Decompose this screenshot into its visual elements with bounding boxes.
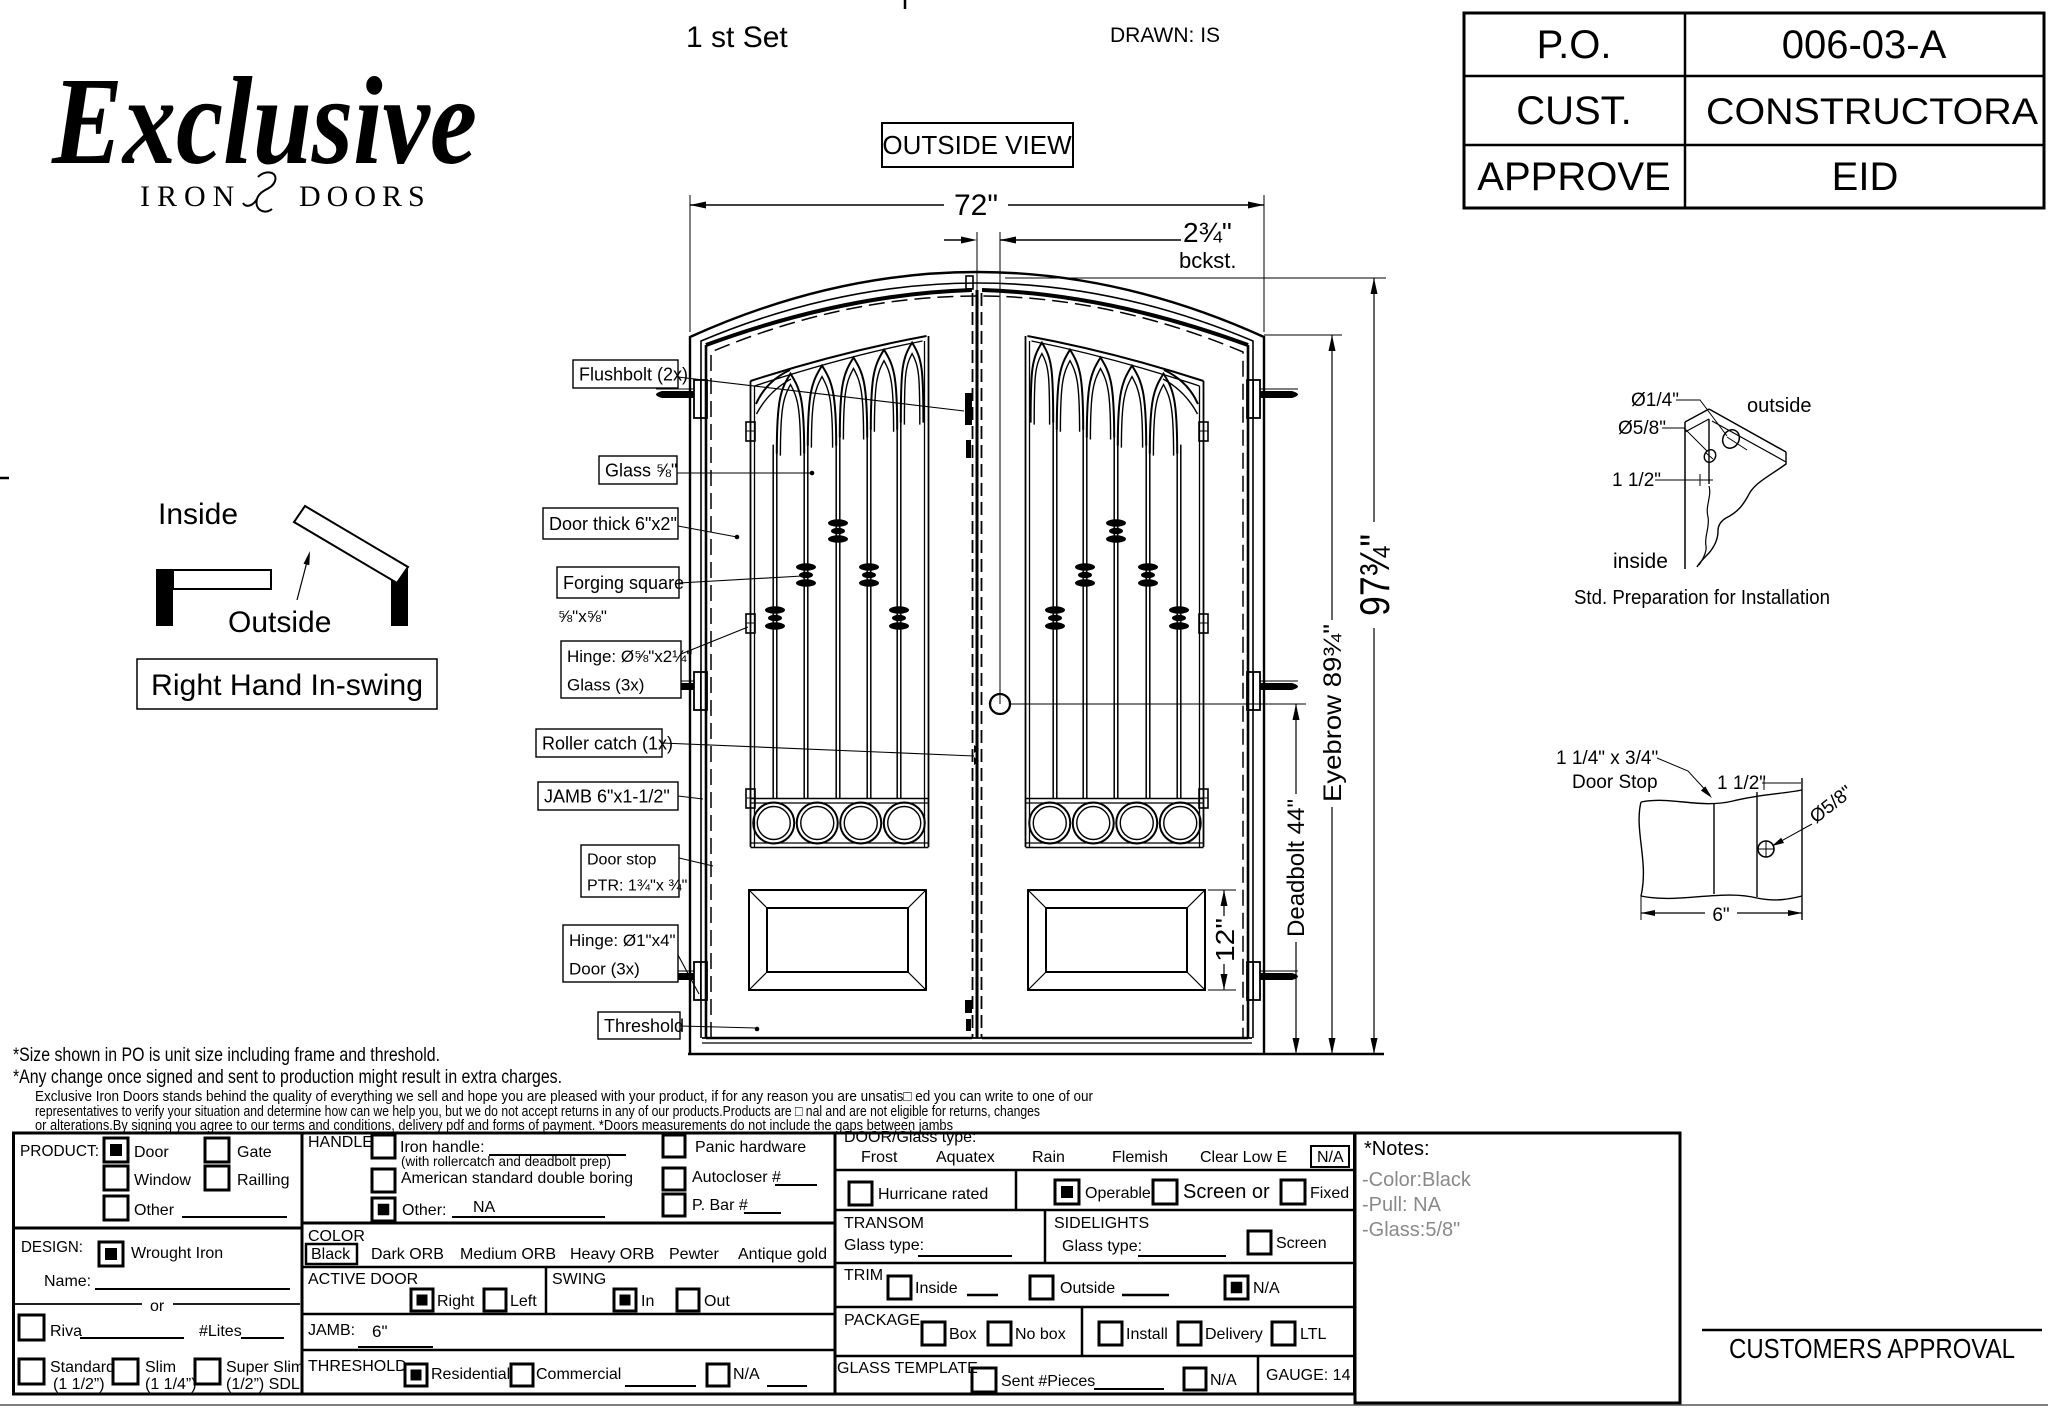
svg-text:LTL: LTL: [1300, 1326, 1326, 1343]
svg-text:Door: Door: [134, 1144, 169, 1161]
svg-text:Clear Low E: Clear Low E: [1200, 1149, 1287, 1166]
svg-text:Antique gold: Antique gold: [738, 1246, 827, 1263]
svg-text:GAUGE: 14: GAUGE: 14: [1266, 1367, 1351, 1384]
svg-text:Slim: Slim: [145, 1359, 176, 1376]
svg-text:Other: Other: [134, 1202, 175, 1219]
svg-text:PTR: 1¾"x ¾": PTR: 1¾"x ¾": [587, 878, 687, 895]
svg-text:N/A: N/A: [733, 1366, 760, 1383]
svg-text:Super Slim: Super Slim: [226, 1359, 304, 1376]
svg-text:Box: Box: [949, 1326, 977, 1343]
svg-text:Inside: Inside: [158, 498, 238, 531]
svg-text:Gate: Gate: [237, 1144, 272, 1161]
svg-text:or alterations.By signing you: or alterations.By signing you agree to o…: [35, 1117, 953, 1134]
svg-text:CONSTRUCTORA: CONSTRUCTORA: [1706, 91, 2038, 132]
svg-text:72": 72": [954, 189, 998, 222]
svg-text:Glass type:: Glass type:: [1062, 1238, 1142, 1255]
svg-text:CUSTOMERS APPROVAL: CUSTOMERS APPROVAL: [1729, 1333, 2015, 1364]
svg-text:Roller catch (1x): Roller catch (1x): [542, 734, 673, 754]
svg-text:TRANSOM: TRANSOM: [844, 1215, 924, 1232]
svg-text:*Any change once signed and se: *Any change once signed and sent to prod…: [13, 1067, 562, 1088]
svg-text:Left: Left: [510, 1293, 537, 1310]
svg-text:(1 1/4”): (1 1/4”): [145, 1376, 197, 1393]
svg-text:Forging square: Forging square: [563, 573, 684, 593]
svg-text:Door Stop: Door Stop: [1572, 772, 1658, 793]
svg-text:Outside: Outside: [228, 606, 331, 639]
svg-text:THRESHOLD: THRESHOLD: [308, 1358, 407, 1375]
svg-text:Flushbolt (2x): Flushbolt (2x): [579, 365, 688, 385]
svg-text:Residential: Residential: [431, 1366, 510, 1383]
svg-text:⅝"x⅝": ⅝"x⅝": [558, 607, 607, 626]
svg-text:Fixed: Fixed: [1310, 1185, 1349, 1202]
svg-text:Dark ORB: Dark ORB: [371, 1246, 444, 1263]
svg-text:Glass type:: Glass type:: [844, 1237, 924, 1254]
svg-text:1 1/2": 1 1/2": [1612, 470, 1661, 491]
svg-text:PRODUCT:: PRODUCT:: [20, 1143, 99, 1160]
svg-text:Window: Window: [134, 1172, 191, 1189]
svg-text:Black: Black: [311, 1246, 351, 1263]
svg-text:12": 12": [1210, 918, 1240, 962]
svg-text:(1 1/2”): (1 1/2”): [53, 1376, 105, 1393]
svg-text:No box: No box: [1015, 1326, 1066, 1343]
svg-text:Out: Out: [704, 1293, 730, 1310]
svg-text:1 1/2": 1 1/2": [1717, 773, 1766, 794]
svg-text:Door (3x): Door (3x): [569, 959, 640, 978]
svg-text:Heavy ORB: Heavy ORB: [570, 1246, 654, 1263]
svg-text:In: In: [641, 1293, 654, 1310]
svg-text:CUST.: CUST.: [1516, 89, 1632, 133]
svg-text:2¾": 2¾": [1183, 217, 1232, 248]
svg-text:Hinge: Ø⅝"x2¼": Hinge: Ø⅝"x2¼": [567, 647, 692, 666]
svg-text:Frost: Frost: [861, 1149, 898, 1166]
svg-text:1 1/4" x 3/4": 1 1/4" x 3/4": [1556, 748, 1658, 769]
svg-text:IRON: IRON: [140, 180, 241, 213]
svg-text:Name:: Name:: [44, 1273, 91, 1290]
svg-text:#Lites: #Lites: [199, 1323, 242, 1340]
svg-text:Right Hand In-swing: Right Hand In-swing: [151, 669, 423, 702]
svg-text:or: or: [150, 1298, 165, 1315]
svg-text:Flemish: Flemish: [1112, 1149, 1168, 1166]
svg-text:Operable: Operable: [1085, 1185, 1151, 1202]
svg-text:Hurricane rated: Hurricane rated: [878, 1186, 988, 1203]
svg-text:bckst.: bckst.: [1179, 248, 1236, 273]
svg-text:-Pull: NA: -Pull: NA: [1362, 1194, 1442, 1216]
svg-text:*Notes:: *Notes:: [1364, 1138, 1430, 1160]
svg-text:-Color:Black: -Color:Black: [1362, 1169, 1472, 1191]
svg-text:Autocloser #: Autocloser #: [692, 1169, 781, 1186]
svg-text:APPROVE: APPROVE: [1477, 155, 1670, 199]
svg-text:Ø1/4": Ø1/4": [1631, 390, 1679, 411]
svg-text:Delivery: Delivery: [1205, 1326, 1263, 1343]
svg-text:Deadbolt 44": Deadbolt 44": [1283, 799, 1310, 937]
svg-text:Door thick 6"x2": Door thick 6"x2": [549, 514, 677, 534]
svg-text:6": 6": [1712, 905, 1729, 926]
svg-text:JAMB:: JAMB:: [308, 1322, 355, 1339]
svg-text:DOOR/Glass type:: DOOR/Glass type:: [844, 1129, 976, 1146]
svg-text:Hinge: Ø1"x4": Hinge: Ø1"x4": [569, 931, 676, 950]
svg-text:Install: Install: [1126, 1326, 1168, 1343]
svg-text:Ø5/8": Ø5/8": [1618, 418, 1666, 439]
svg-text:DRAWN: IS: DRAWN: IS: [1110, 24, 1220, 47]
svg-text:EID: EID: [1832, 155, 1899, 199]
svg-text:P.O.: P.O.: [1537, 23, 1612, 67]
svg-text:PACKAGE: PACKAGE: [844, 1312, 920, 1329]
svg-text:006-03-A: 006-03-A: [1782, 23, 1947, 67]
svg-text:Screen or: Screen or: [1183, 1181, 1270, 1203]
svg-text:Commercial: Commercial: [536, 1366, 621, 1383]
svg-text:6": 6": [372, 1322, 388, 1341]
svg-text:DOORS: DOORS: [299, 180, 431, 213]
svg-text:ACTIVE DOOR: ACTIVE DOOR: [308, 1271, 418, 1288]
svg-text:SIDELIGHTS: SIDELIGHTS: [1054, 1215, 1149, 1232]
svg-text:Eyebrow 89¾": Eyebrow 89¾": [1319, 624, 1347, 802]
svg-text:Aquatex: Aquatex: [936, 1149, 995, 1166]
svg-text:(with rollercatch and deadbolt: (with rollercatch and deadbolt prep): [401, 1153, 611, 1169]
svg-text:American standard double borin: American standard double boring: [401, 1170, 633, 1187]
svg-text:Door stop: Door stop: [587, 852, 656, 869]
svg-text:Inside: Inside: [915, 1280, 958, 1297]
svg-text:N/A: N/A: [1253, 1280, 1280, 1297]
svg-text:HANDLE: HANDLE: [308, 1134, 373, 1151]
svg-text:Threshold: Threshold: [604, 1016, 684, 1036]
svg-text:Other:: Other:: [402, 1202, 446, 1219]
svg-text:Riva: Riva: [50, 1323, 82, 1340]
svg-text:Panic hardware: Panic hardware: [695, 1139, 806, 1156]
svg-text:outside: outside: [1747, 395, 1812, 417]
svg-text:P. Bar #: P. Bar #: [692, 1197, 748, 1214]
svg-text:NA: NA: [473, 1199, 496, 1216]
svg-text:-Glass:5/8": -Glass:5/8": [1362, 1219, 1460, 1241]
svg-text:SWING: SWING: [552, 1271, 606, 1288]
svg-text:Standard: Standard: [50, 1359, 115, 1376]
svg-text:N/A: N/A: [1317, 1149, 1344, 1166]
svg-text:Medium ORB: Medium ORB: [460, 1246, 556, 1263]
svg-text:DESIGN:: DESIGN:: [21, 1239, 83, 1256]
svg-text:Screen: Screen: [1276, 1235, 1327, 1252]
svg-text:Rain: Rain: [1032, 1149, 1065, 1166]
svg-text:Glass (3x): Glass (3x): [567, 675, 644, 694]
svg-text:Wrought Iron: Wrought Iron: [131, 1245, 223, 1262]
svg-text:Right: Right: [437, 1293, 475, 1310]
svg-text:Std. Preparation for Installat: Std. Preparation for Installation: [1574, 587, 1830, 609]
svg-text:Exclusive: Exclusive: [51, 53, 477, 191]
svg-text:Outside: Outside: [1060, 1280, 1115, 1297]
svg-text:JAMB 6"x1-1/2": JAMB 6"x1-1/2": [544, 787, 670, 807]
svg-text:*Size shown in PO is unit size: *Size shown in PO is unit size including…: [13, 1045, 440, 1066]
svg-text:COLOR: COLOR: [308, 1228, 365, 1245]
svg-text:TRIM: TRIM: [844, 1267, 883, 1284]
svg-text:1 st Set: 1 st Set: [686, 21, 788, 54]
svg-text:97¾": 97¾": [1351, 534, 1398, 616]
svg-text:N/A: N/A: [1210, 1372, 1237, 1389]
svg-text:Sent #Pieces: Sent #Pieces: [1001, 1373, 1095, 1390]
svg-text:Glass ⅝": Glass ⅝": [605, 461, 677, 481]
svg-text:OUTSIDE VIEW: OUTSIDE VIEW: [882, 130, 1072, 160]
svg-text:Pewter: Pewter: [669, 1246, 719, 1263]
svg-text:(1/2”) SDL: (1/2”) SDL: [226, 1376, 300, 1393]
svg-text:inside: inside: [1613, 550, 1668, 573]
svg-text:GLASS TEMPLATE: GLASS TEMPLATE: [837, 1360, 978, 1377]
svg-text:Railling: Railling: [237, 1172, 289, 1189]
